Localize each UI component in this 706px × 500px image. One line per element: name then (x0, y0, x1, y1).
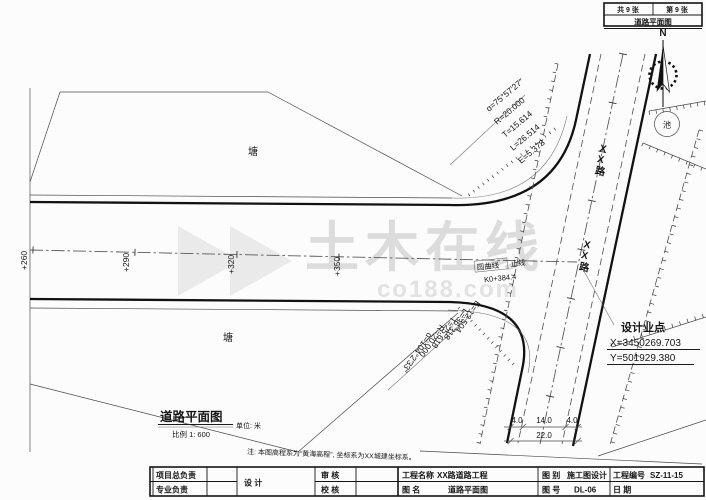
tb-project-name-label: 工程名称 (402, 470, 434, 480)
curve-data-bottom: ɑ=104°2′33″ R=20.000 T=25.618 L=36.318 E… (388, 299, 483, 390)
pond-label-lower: 塘 (223, 331, 233, 344)
road-plan-canvas: 土木在线 co188.com (0, 0, 706, 500)
tb-category-label: 图 别 (542, 471, 560, 480)
dim-middle: 14.0 (536, 416, 552, 425)
dim-total: 22.0 (536, 431, 552, 440)
watermark-chevron-2 (230, 226, 292, 296)
plan-unit: 单位: 米 (236, 421, 261, 430)
design-point: 设计业点 X=3450269.703 Y=501929.380 (580, 264, 700, 365)
cross-road-name-2: XX路 (576, 239, 595, 274)
tb-drawing-name: 道路平面图 (448, 485, 488, 495)
pool-label: 池 (663, 120, 671, 130)
curve-data-top: ɑ=75°57′27″ R=20.000 T=15.614 L=26.514 E… (450, 76, 547, 165)
design-point-x: X=3450269.703 (610, 338, 681, 349)
design-point-y: Y=501929.380 (610, 353, 676, 364)
dimension-lines: 4.0 14.0 4.0 22.0 (504, 416, 582, 444)
tb-category: 施工图设计 (567, 470, 607, 480)
sheet-title: 道路平面图 (634, 17, 672, 27)
sheet-header: 共 9 张 第 9 张 道路平面图 (604, 3, 702, 29)
pool-symbol: 池 (655, 112, 680, 137)
chainage-290: +290 (121, 253, 131, 272)
chainage-350: +350 (332, 257, 342, 276)
tb-number: DL-06 (574, 486, 597, 495)
centerline-note-suffix: 止线 (510, 257, 526, 269)
drawing-note: 注: 本图高程系为“黄海高程”, 坐标系为XX城建坐标系。 (247, 447, 416, 462)
north-needle-light (663, 45, 670, 92)
plan-title: 道路平面图 (160, 409, 223, 424)
chainage-320: +320 (226, 255, 236, 274)
tb-design: 设 计 (244, 478, 262, 488)
north-label: N (659, 28, 666, 39)
tb-drawing-name-label: 图 名 (402, 485, 420, 495)
tb-project-name: XX路道路工程 (437, 470, 488, 480)
drawing-page: 土木在线 co188.com (0, 0, 706, 500)
tb-date-label: 日 期 (613, 485, 631, 495)
chainage-260: +260 (19, 251, 29, 270)
tb-project-lead: 项目总负责 (156, 470, 196, 480)
title-block: 项目总负责 专业负责 设 计 审 核 校 核 工程名称 XX路道路工程 图 名 … (150, 467, 704, 496)
sheet-volume: 共 9 张 (617, 5, 640, 14)
tb-discipline-lead: 专业负责 (156, 485, 188, 495)
design-point-title: 设计业点 (621, 320, 665, 334)
plan-title-block: 道路平面图 单位: 米 比例 1: 600 (158, 409, 261, 439)
tb-check: 校 核 (321, 485, 339, 495)
plan-scale: 比例 1: 600 (172, 429, 210, 439)
dim-right: 4.0 (566, 416, 578, 425)
tb-project-no: SZ-11-15 (650, 471, 683, 480)
tb-number-label: 图 号 (542, 486, 560, 495)
pond-label-upper: 塘 (248, 145, 258, 158)
cross-road-name: XX路 (592, 143, 611, 178)
tb-project-no-label: 工程编号 (613, 470, 645, 480)
sheet-number: 第 9 张 (666, 5, 689, 14)
north-needle-dark (657, 45, 664, 92)
tb-review: 审 核 (321, 470, 339, 480)
dim-left: 4.0 (511, 416, 523, 425)
